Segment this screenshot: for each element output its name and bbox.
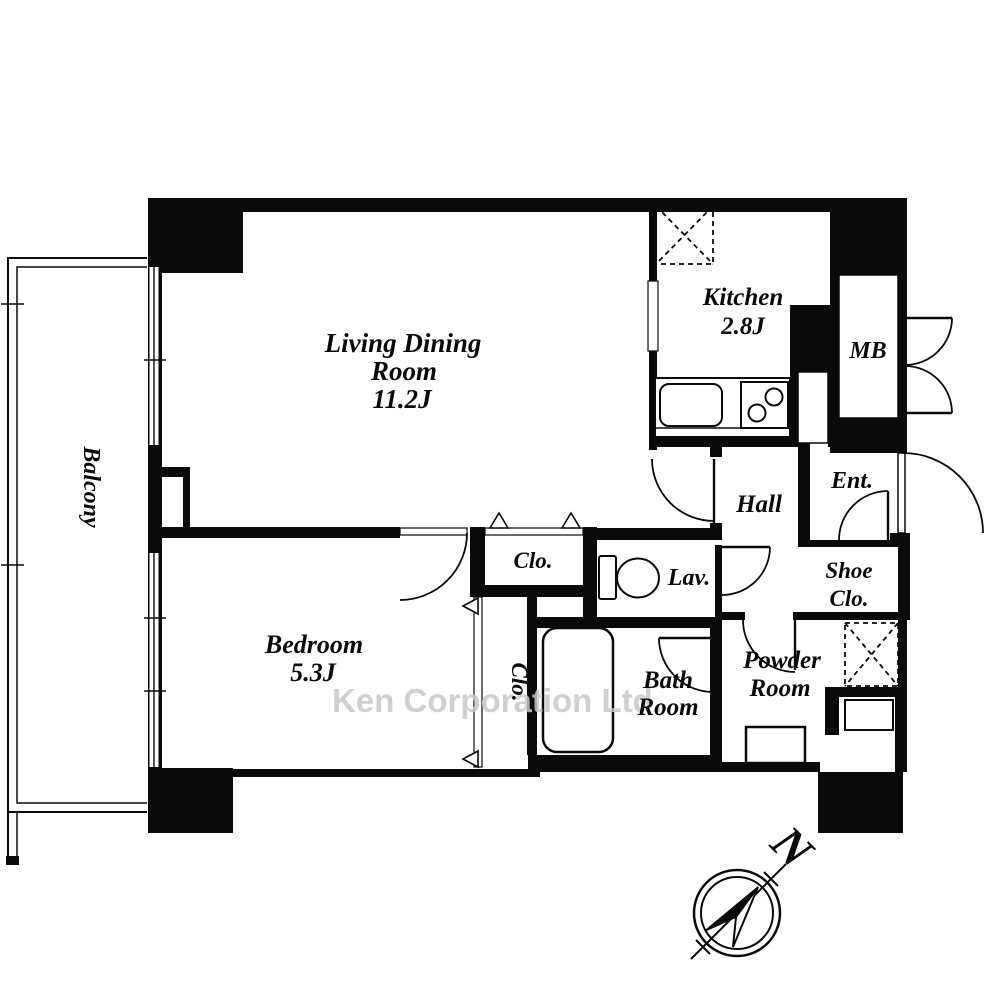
hall-closet-label: Clo.	[514, 548, 553, 573]
floorplan-drawing: Ken Corporation Ltd. Living Dining Room …	[0, 0, 1000, 1000]
folding-door-marker	[490, 513, 508, 528]
living-dining-label-3: 11.2J	[372, 384, 433, 414]
living-hall-door	[652, 459, 714, 523]
shoe-closet-door	[839, 491, 888, 540]
entrance-label: Ent.	[830, 468, 873, 494]
washer-space-icon	[845, 623, 898, 686]
bedroom-label-2: 5.3J	[290, 658, 337, 687]
pipe-shaft-box	[798, 372, 828, 443]
balcony-rail-foot	[6, 856, 19, 865]
meter-box-label: MB	[848, 338, 886, 364]
watermark: Ken Corporation Ltd.	[332, 682, 662, 719]
powder-room-label-1: Powder	[742, 647, 821, 674]
floorplan-page: Ken Corporation Ltd. Living Dining Room …	[0, 0, 1000, 1000]
lav-corridor-door	[722, 547, 770, 595]
compass-needle-outline	[733, 887, 758, 947]
shoe-closet-label-1: Shoe	[825, 558, 872, 583]
bath-label-1: Bath	[642, 667, 693, 694]
compass-needle-icon	[705, 887, 758, 931]
closet-door-marker	[463, 751, 478, 767]
kitchen-label-2: 2.8J	[720, 313, 766, 340]
living-dining-label-1: Living Dining	[324, 328, 482, 358]
bedroom-doorway-opening	[400, 528, 467, 535]
folding-door-marker	[562, 513, 580, 528]
washbasin-icon	[746, 727, 805, 763]
balcony-rail	[1, 258, 147, 865]
pipe-space-box	[845, 700, 893, 730]
compass-icon: N	[691, 816, 824, 959]
stove-icon	[741, 382, 788, 428]
shoe-closet-label-2: Clo.	[830, 586, 869, 611]
closet-door-marker	[463, 598, 478, 614]
meter-box-doors	[905, 318, 952, 413]
kitchen-doorway-opening	[648, 281, 658, 351]
bedroom-closet-label: Clo.	[507, 663, 532, 702]
refrigerator-space-icon	[656, 206, 713, 264]
toilet-icon	[599, 556, 659, 599]
bath-label-2: Room	[636, 694, 698, 721]
balcony-label: Balcony	[78, 445, 104, 528]
living-dining-label-2: Room	[370, 356, 437, 386]
lavatory-label: Lav.	[667, 565, 710, 591]
hall-label: Hall	[735, 491, 782, 518]
bedroom-door	[400, 533, 467, 600]
compass-north-label: N	[760, 816, 824, 880]
powder-room-label-2: Room	[748, 675, 810, 702]
closet-folding-door-track	[485, 528, 583, 535]
bedroom-label-1: Bedroom	[264, 630, 363, 659]
kitchen-label-1: Kitchen	[702, 284, 784, 311]
kitchen-counter-icon	[655, 378, 790, 437]
entrance-door-swing	[903, 453, 983, 533]
entrance-door-leaf	[898, 453, 905, 533]
kitchen-sink-icon	[660, 384, 722, 426]
